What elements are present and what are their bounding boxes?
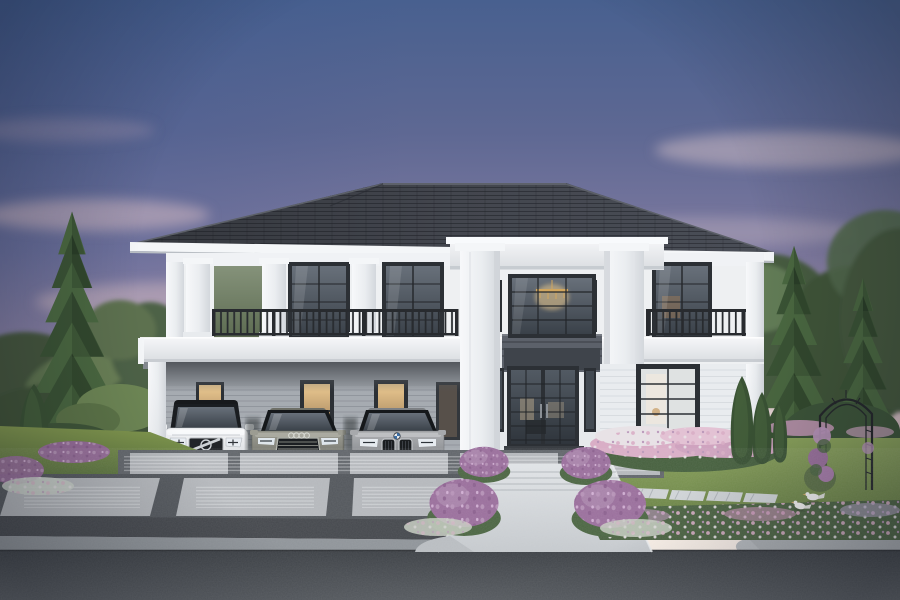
render-canvas: Two-story modern classical luxury house … bbox=[0, 0, 900, 600]
vignette bbox=[0, 0, 900, 600]
scene-image: Two-story modern classical luxury house … bbox=[0, 0, 900, 600]
